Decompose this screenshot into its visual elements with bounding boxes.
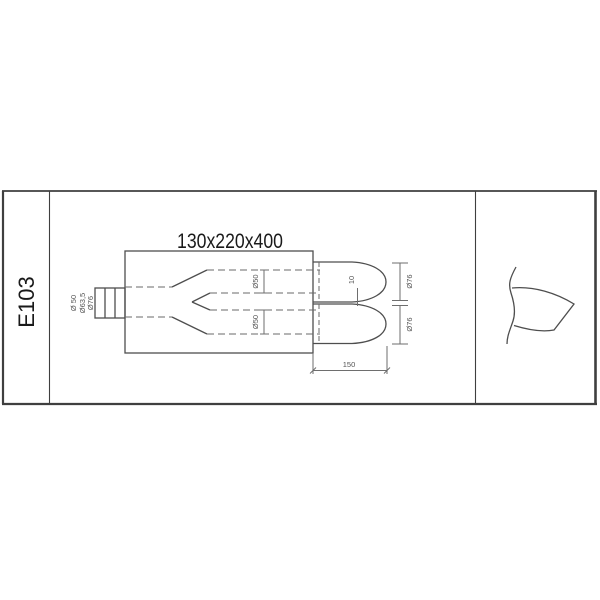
- tip-profile-view: [507, 267, 574, 344]
- part-code-label: E103: [14, 276, 39, 327]
- tip-bottom-outline: [313, 304, 386, 344]
- outlet-tips: [313, 262, 386, 344]
- branch-diameter-dims: Ø50 Ø50: [251, 270, 268, 334]
- inlet-stub-outline: [95, 288, 125, 318]
- technical-drawing-svg: E103 130x220x400 Ø 50 Ø63,5 Ø76: [0, 0, 600, 600]
- y-wedge-upper-edge: [192, 293, 210, 302]
- inlet-stub: [95, 288, 125, 318]
- y-split-lower-diagonal: [172, 317, 207, 334]
- tip-diameter-dims: Ø76 Ø76: [392, 263, 414, 344]
- tip-profile-outline: [512, 288, 574, 331]
- tip-length-label: 150: [343, 360, 356, 369]
- y-split-upper-diagonal: [172, 270, 207, 287]
- y-pipe-hidden-lines: [125, 270, 320, 334]
- drawing-sheet: E103 130x220x400 Ø 50 Ø63,5 Ø76: [0, 0, 600, 600]
- overall-dimensions-label: 130x220x400: [177, 230, 283, 253]
- y-wedge-lower-edge: [192, 302, 210, 310]
- tip-length-dim: 150: [310, 346, 390, 374]
- muffler-body-outline: [125, 251, 313, 353]
- branch-top-diameter-label: Ø50: [251, 274, 260, 288]
- branch-bottom-diameter-label: Ø50: [251, 315, 260, 329]
- break-line: [507, 267, 516, 344]
- inlet-diameter-inner-label: Ø 50: [69, 295, 78, 311]
- tip-gap-label: 10: [347, 276, 356, 284]
- muffler-main-view: 130x220x400 Ø 50 Ø63,5 Ø76: [69, 230, 414, 374]
- tip-top-diameter-label: Ø76: [405, 274, 414, 288]
- inlet-diameter-outer-label: Ø76: [86, 296, 95, 310]
- tip-bottom-diameter-label: Ø76: [405, 317, 414, 331]
